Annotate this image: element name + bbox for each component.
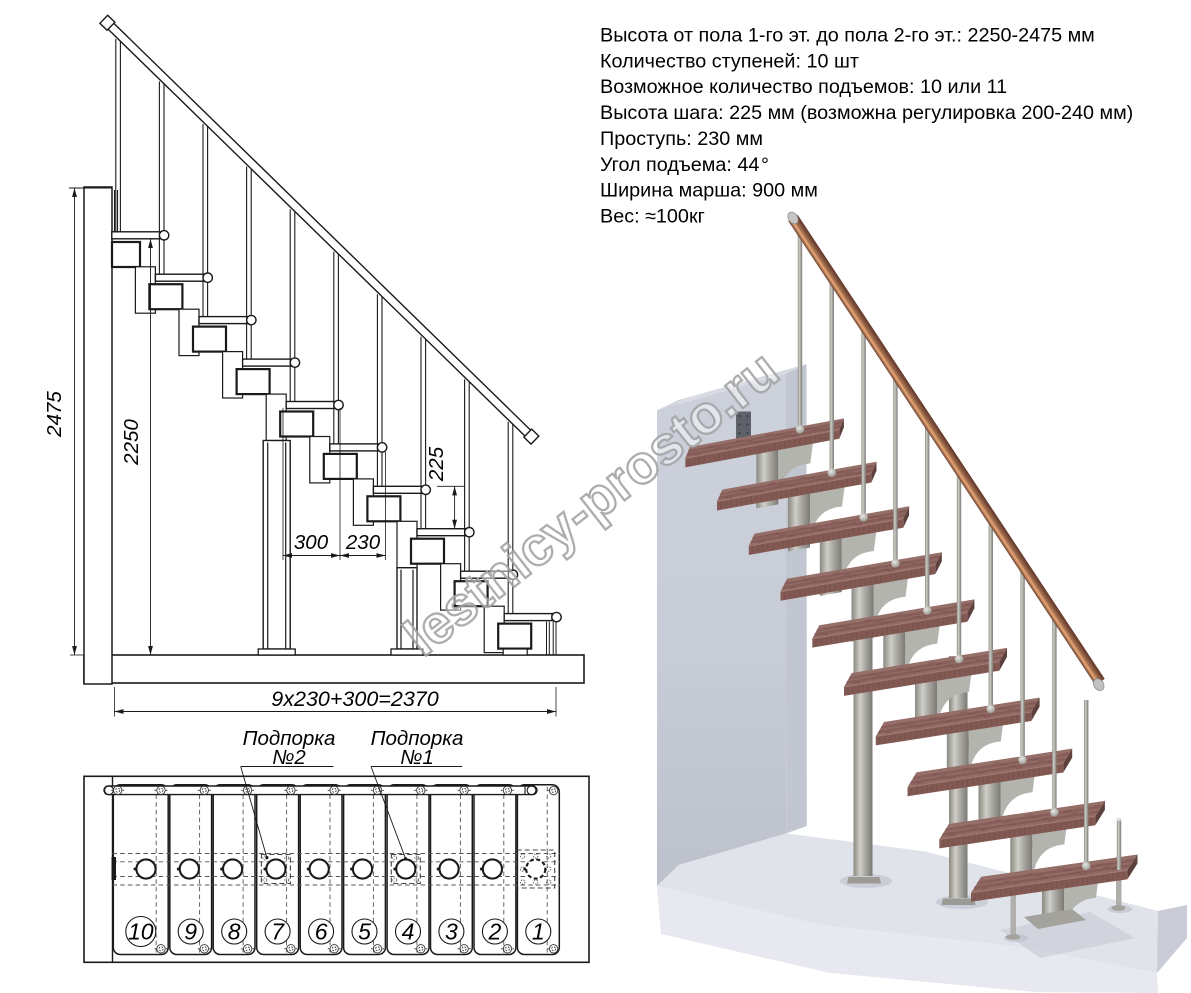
svg-text:Высота шага: 225 мм (возможна: Высота шага: 225 мм (возможна регулировк… <box>600 102 1133 124</box>
svg-text:1: 1 <box>532 919 545 945</box>
svg-text:225: 225 <box>425 446 448 482</box>
svg-text:№2: №2 <box>272 746 306 769</box>
svg-text:Высота от пола 1-го эт. до пол: Высота от пола 1-го эт. до пола 2-го эт.… <box>600 25 1095 47</box>
svg-text:8: 8 <box>228 919 241 945</box>
svg-text:2475: 2475 <box>43 391 66 438</box>
svg-text:Угол подъема: 44 °: Угол подъема: 44 ° <box>600 154 769 176</box>
svg-text:Вес: ≈100кг: Вес: ≈100кг <box>600 206 705 228</box>
svg-text:10: 10 <box>128 919 154 945</box>
svg-text:4: 4 <box>402 919 415 945</box>
svg-text:230: 230 <box>345 531 381 554</box>
svg-text:Количество ступеней: 10 шт: Количество ступеней: 10 шт <box>600 50 859 72</box>
svg-text:Возможное количество подъемов:: Возможное количество подъемов: 10 или 11 <box>600 76 1007 98</box>
svg-text:Ширина марша: 900 мм: Ширина марша: 900 мм <box>600 180 818 202</box>
svg-text:300: 300 <box>294 531 329 554</box>
svg-text:2: 2 <box>488 919 502 945</box>
svg-text:Проступь: 230 мм: Проступь: 230 мм <box>600 128 763 150</box>
svg-text:№1: №1 <box>400 746 434 769</box>
svg-text:7: 7 <box>271 919 285 945</box>
svg-text:9: 9 <box>184 919 197 945</box>
svg-text:2250: 2250 <box>120 419 143 466</box>
svg-text:5: 5 <box>358 919 371 945</box>
svg-text:9x230+300=2370: 9x230+300=2370 <box>271 687 438 711</box>
svg-text:3: 3 <box>445 919 458 945</box>
svg-text:6: 6 <box>315 919 328 945</box>
